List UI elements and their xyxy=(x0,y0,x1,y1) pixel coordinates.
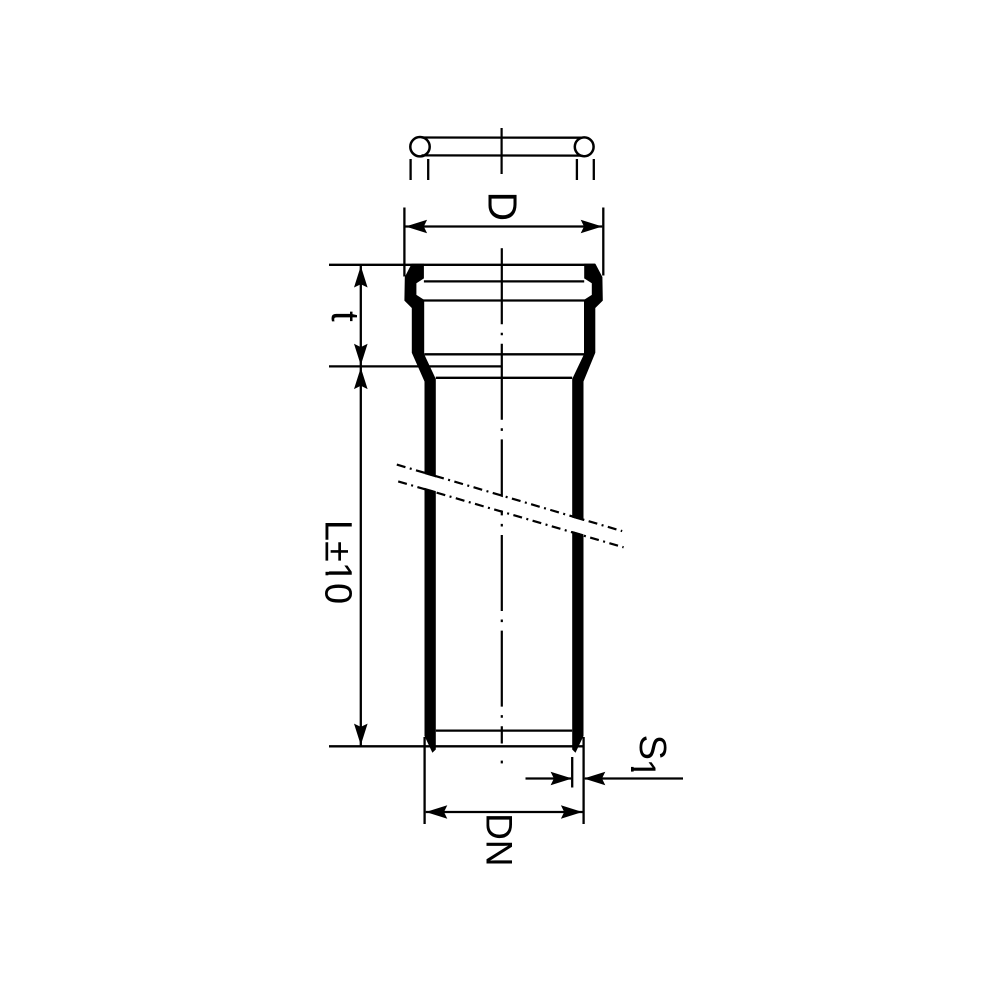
svg-text:D: D xyxy=(480,191,526,221)
svg-text:DN: DN xyxy=(479,813,520,866)
svg-text:L±10: L±10 xyxy=(317,520,359,604)
svg-text:t: t xyxy=(323,311,366,322)
svg-text:S: S xyxy=(631,735,673,760)
svg-text:1: 1 xyxy=(623,759,662,778)
